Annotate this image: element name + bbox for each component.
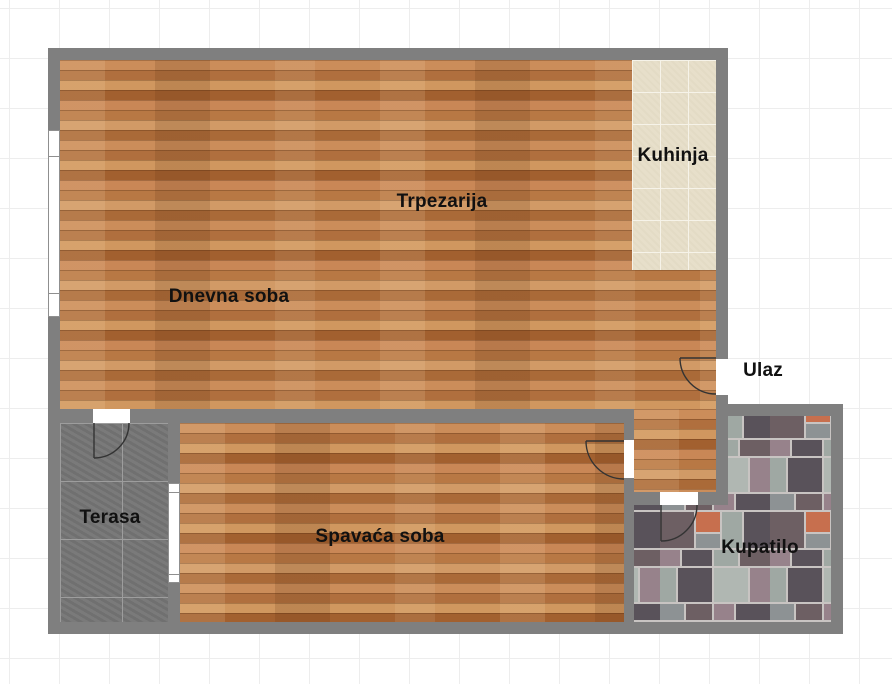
terrace-door-opening bbox=[93, 409, 130, 423]
wall-right-mid bbox=[716, 395, 728, 505]
entry-door-opening bbox=[716, 359, 728, 395]
wall-living-bedroom bbox=[60, 409, 634, 423]
floor-hallway bbox=[634, 409, 716, 492]
window-pane-line bbox=[49, 293, 59, 294]
room-label-kuhinja: Kuhinja bbox=[637, 145, 708, 167]
bathroom-door-arc bbox=[661, 505, 697, 541]
wall-bottom bbox=[48, 622, 843, 634]
floor-living-dining bbox=[60, 60, 716, 409]
wall-top bbox=[48, 48, 728, 60]
window-pane-line bbox=[169, 492, 179, 493]
floor-bedroom bbox=[180, 423, 624, 622]
bedroom-door-opening bbox=[624, 440, 634, 478]
window-pane-line bbox=[49, 156, 59, 157]
living-room-window bbox=[48, 130, 60, 317]
room-label-ulaz: Ulaz bbox=[743, 360, 783, 382]
wall-bathroom-top bbox=[728, 404, 843, 416]
floor-plan-canvas: Kuhinja Trpezarija Dnevna soba Ulaz Tera… bbox=[0, 0, 892, 684]
room-label-terasa: Terasa bbox=[79, 507, 140, 529]
bathroom-door-opening bbox=[660, 492, 698, 505]
bedroom-terrace-window bbox=[168, 483, 180, 583]
room-label-kupatilo: Kupatilo bbox=[721, 537, 799, 559]
window-pane-line bbox=[169, 574, 179, 575]
wall-right-upper bbox=[716, 48, 728, 359]
wall-bathroom-right bbox=[831, 404, 843, 634]
room-label-spavaca-soba: Spavaća soba bbox=[315, 526, 444, 548]
room-label-trpezarija: Trpezarija bbox=[397, 191, 488, 213]
room-label-dnevna-soba: Dnevna soba bbox=[169, 286, 289, 308]
